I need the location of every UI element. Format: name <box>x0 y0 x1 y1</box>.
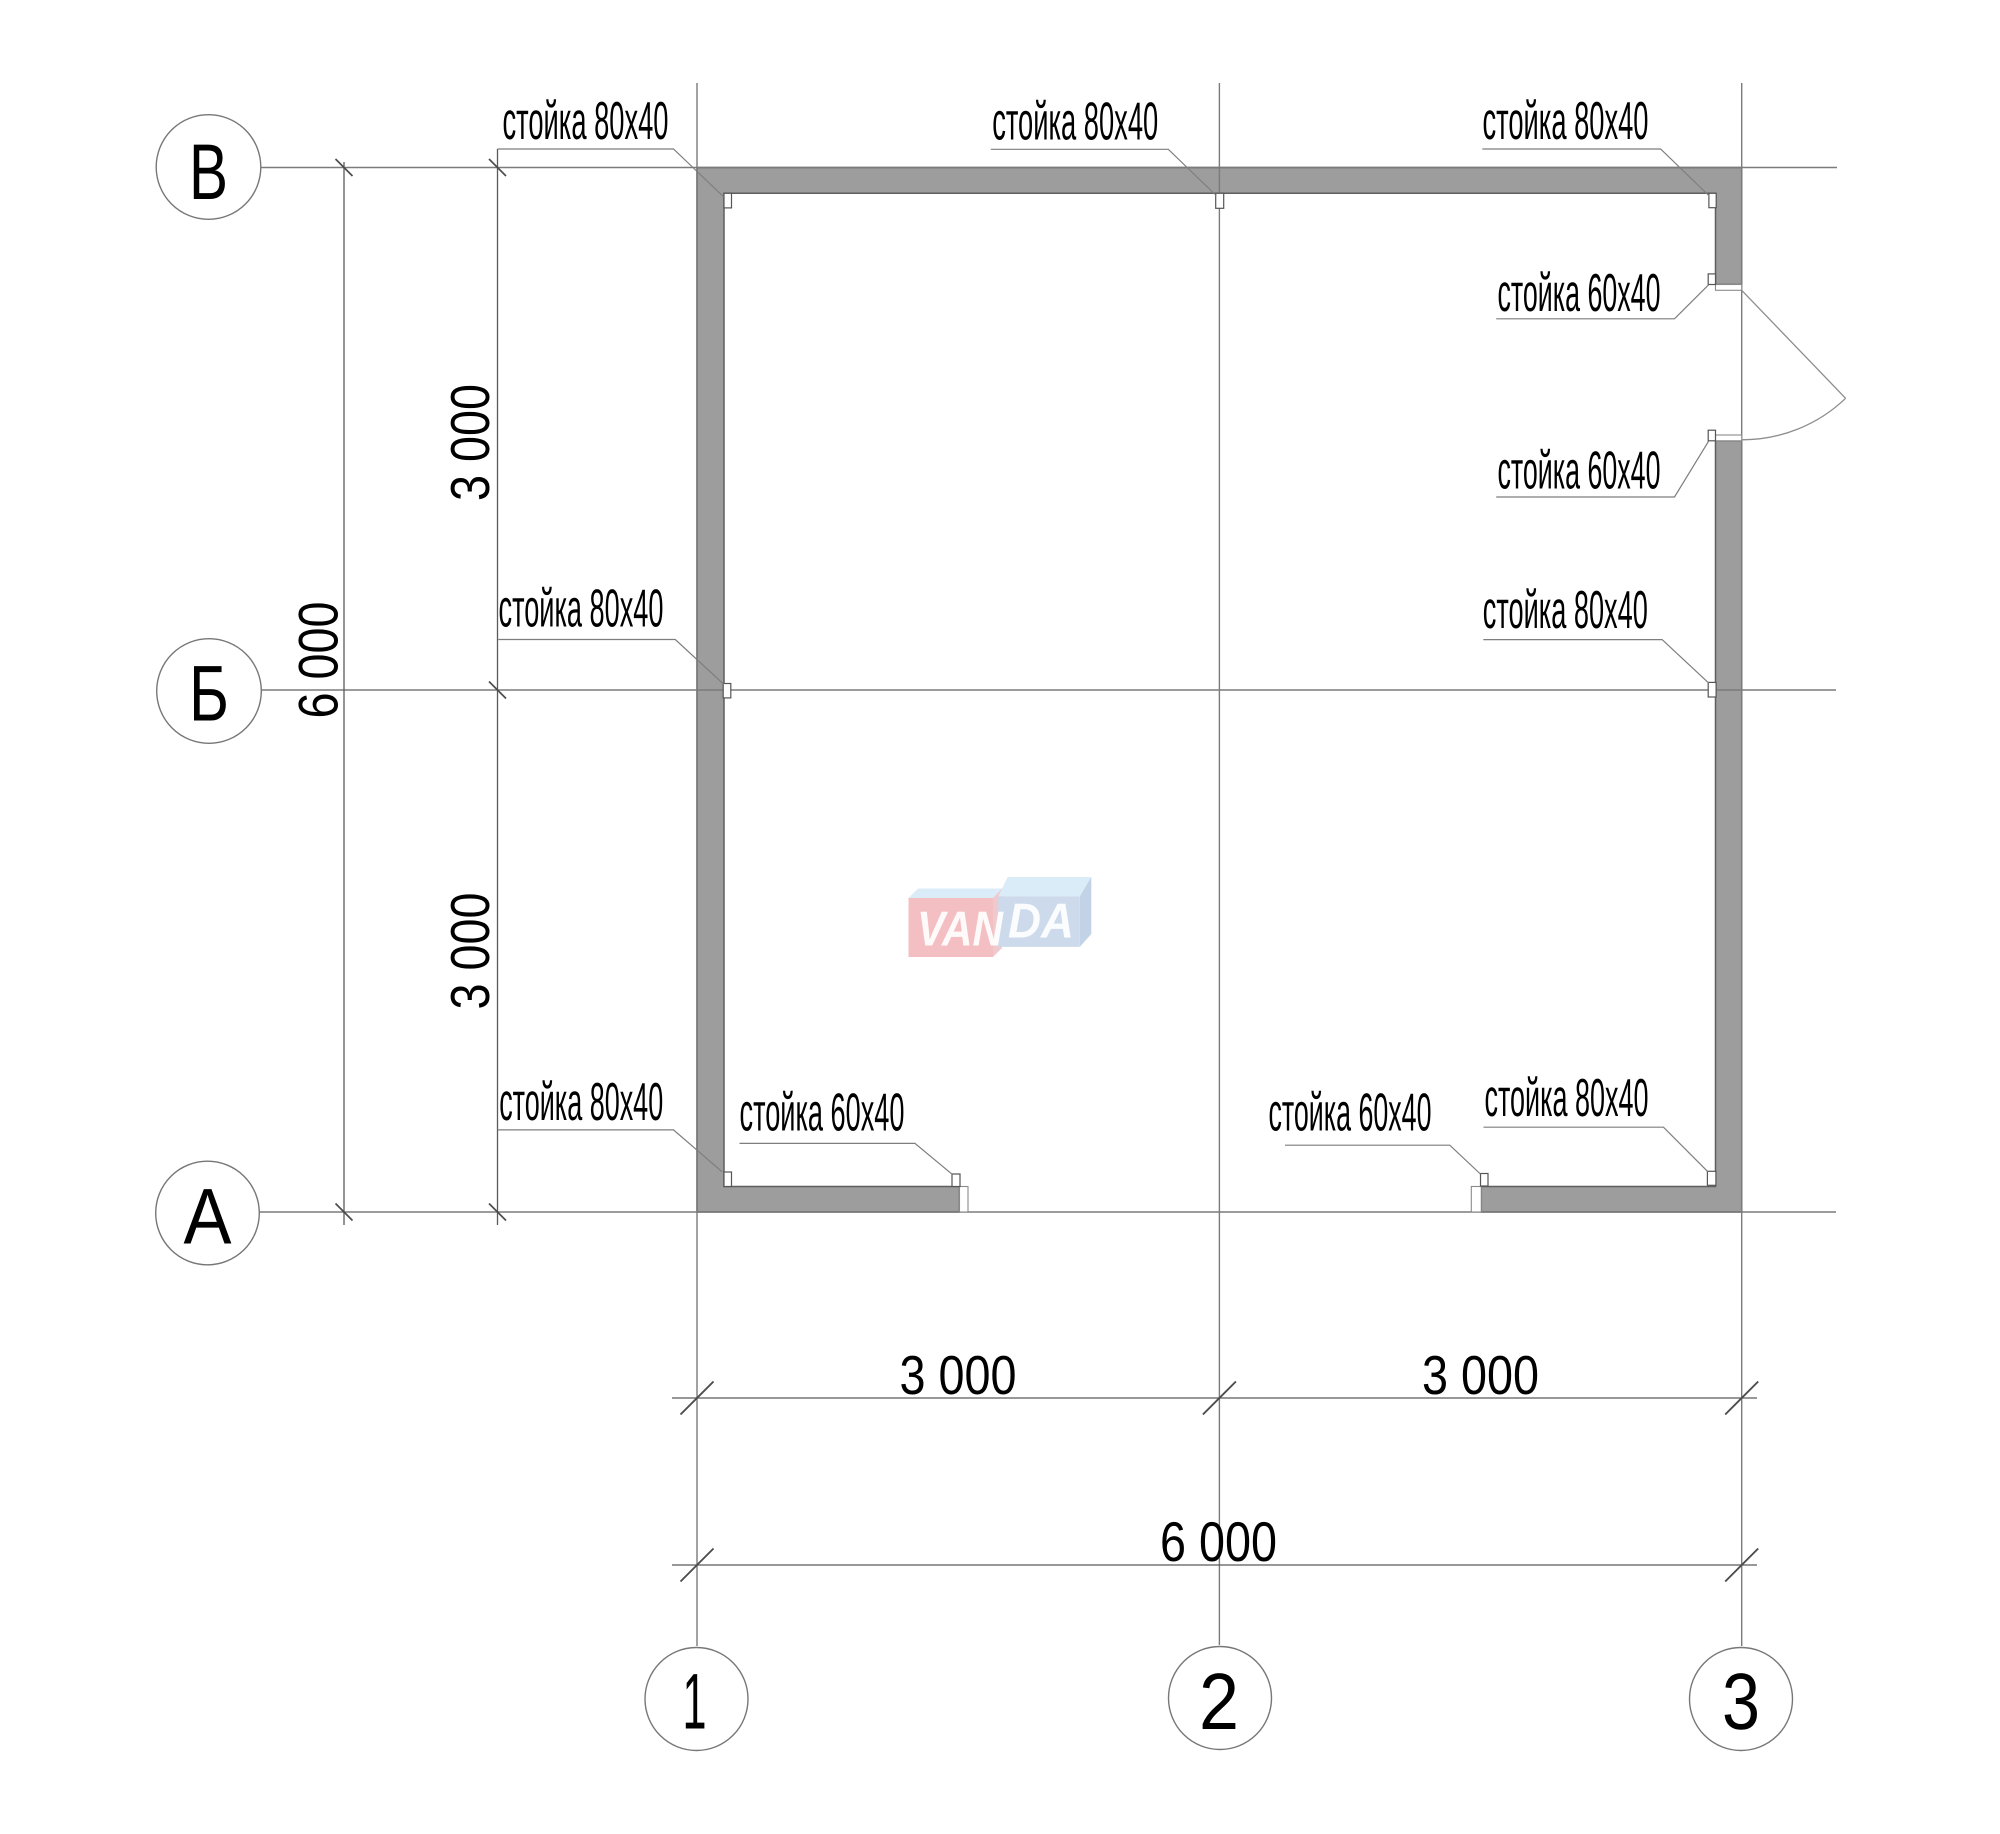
svg-text:3: 3 <box>1722 1657 1760 1746</box>
svg-text:стойка 60х40: стойка 60х40 <box>1498 442 1661 501</box>
svg-text:стойка 80х40: стойка 80х40 <box>1483 92 1649 151</box>
svg-text:В: В <box>189 127 228 216</box>
svg-text:стойка 60х40: стойка 60х40 <box>1498 264 1661 323</box>
svg-text:стойка 60х40: стойка 60х40 <box>740 1084 905 1143</box>
svg-text:3 000: 3 000 <box>1422 1344 1539 1406</box>
svg-text:1: 1 <box>683 1656 707 1745</box>
svg-text:стойка 80х40: стойка 80х40 <box>1483 581 1648 640</box>
svg-text:3 000: 3 000 <box>439 384 501 501</box>
svg-text:А: А <box>184 1171 232 1260</box>
svg-text:6 000: 6 000 <box>1160 1510 1277 1573</box>
svg-text:стойка 60х40: стойка 60х40 <box>1269 1084 1432 1143</box>
svg-text:Б: Б <box>189 649 229 738</box>
svg-text:стойка 80х40: стойка 80х40 <box>503 92 669 151</box>
svg-text:2: 2 <box>1199 1657 1239 1746</box>
svg-text:DA: DA <box>1008 895 1074 949</box>
svg-text:стойка 80х40: стойка 80х40 <box>499 1073 663 1132</box>
svg-text:стойка 80х40: стойка 80х40 <box>1485 1069 1649 1128</box>
svg-text:стойка 80х40: стойка 80х40 <box>992 93 1158 152</box>
svg-text:6 000: 6 000 <box>287 602 350 719</box>
svg-text:3 000: 3 000 <box>900 1344 1017 1406</box>
svg-text:VAN: VAN <box>917 903 1004 957</box>
svg-text:3 000: 3 000 <box>439 893 501 1010</box>
svg-text:стойка 80х40: стойка 80х40 <box>499 580 664 639</box>
